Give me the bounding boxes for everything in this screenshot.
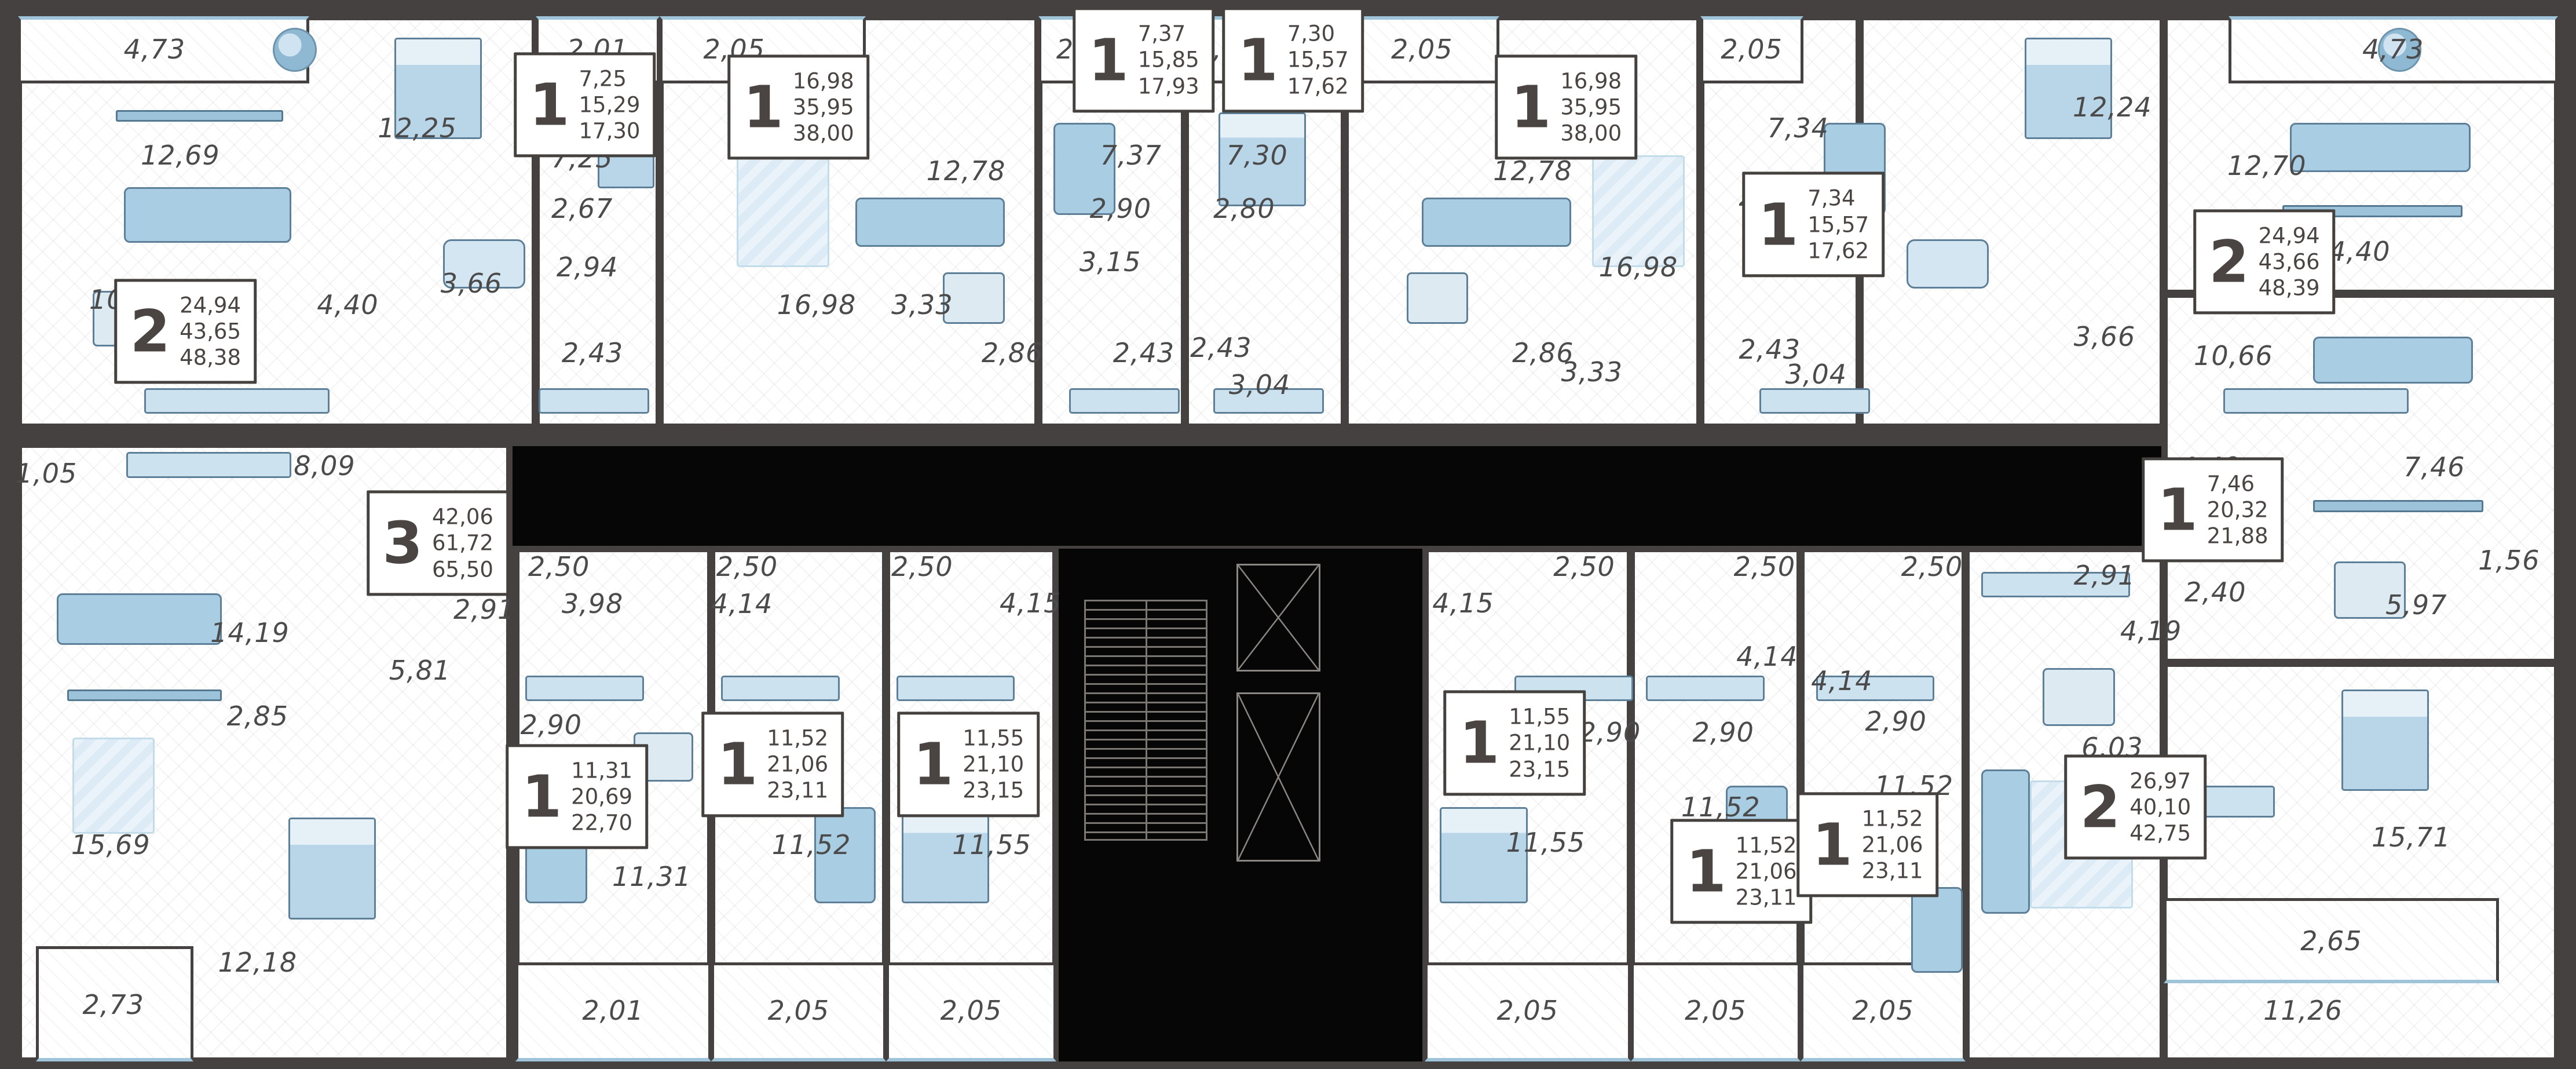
area-value: 21,06: [1862, 831, 1923, 858]
area-value: 11,52: [1862, 805, 1923, 831]
floor-plan: 4,7312,2512,6910,654,403,66224,9443,6548…: [0, 0, 2576, 1069]
room-area-label: 2,50: [1901, 551, 1963, 582]
area-value: 11,31: [571, 757, 632, 783]
room-area-label: 2,67: [551, 193, 613, 224]
room-area-label: 7,46: [2403, 451, 2465, 483]
room-area-label: 2,90: [1865, 706, 1927, 737]
area-value: 35,95: [1560, 94, 1622, 120]
sofa-icon: [2313, 337, 2473, 384]
sofa-icon: [1981, 769, 2030, 914]
area-value: 35,95: [793, 94, 854, 120]
apartment-info-box-B5: 111,5521,1023,15: [1444, 691, 1586, 796]
bed-icon: [2025, 38, 2112, 139]
room-area-label: 2,43: [1113, 337, 1174, 369]
room-area-label: 4,40: [317, 289, 378, 320]
room-area-label: 2,91: [453, 594, 515, 625]
area-values: 11,5521,1023,15: [1509, 704, 1570, 782]
room-area-label: 2,50: [891, 551, 953, 582]
apartment-info-box-B7: 111,5221,0623,11: [1796, 792, 1939, 897]
area-value: 16,98: [1560, 68, 1622, 94]
room-area-label: 3,04: [1229, 369, 1290, 400]
room-count: 1: [1812, 820, 1853, 869]
area-values: 7,3415,5717,62: [1807, 185, 1869, 264]
apartment-info-box-R1: 17,4620,3221,88: [2142, 457, 2284, 562]
area-value: 23,11: [767, 778, 828, 804]
sofa-icon: [2290, 123, 2470, 172]
room-area-label: 2,85: [227, 700, 288, 732]
room-count: 2: [2080, 782, 2121, 831]
room-area-label: 2,40: [2185, 577, 2246, 608]
area-value: 7,30: [1287, 21, 1335, 47]
apartment-info-box-T4: 17,3715,8517,93: [1073, 8, 1215, 112]
area-values: 26,9740,1042,75: [2129, 768, 2191, 846]
area-value: 16,98: [793, 68, 854, 94]
bed-icon: [288, 818, 376, 919]
bath-icon: [1907, 239, 1989, 289]
area-value: 42,75: [2129, 820, 2191, 847]
sofa-icon: [1911, 887, 1963, 973]
room-area-label: 3,98: [562, 588, 623, 619]
area-value: 43,66: [2259, 249, 2320, 275]
apartment-info-box-T7: 17,3415,5717,62: [1743, 172, 1885, 277]
area-value: 22,70: [571, 809, 632, 836]
area-value: 38,00: [793, 120, 854, 146]
area-values: 11,5521,1023,15: [963, 725, 1024, 803]
room-area-label: 4,14: [1736, 641, 1798, 672]
tv-icon: [116, 110, 283, 122]
plant-icon: [273, 28, 317, 72]
room-area-label: 3,66: [2074, 321, 2135, 352]
kitchen-icon: [525, 676, 644, 701]
room-area-label: 2,80: [1213, 193, 1275, 224]
apartment-info-box-B8: 226,9740,1042,75: [2065, 754, 2207, 859]
apartment-info-box-T3: 116,9835,9538,00: [727, 54, 870, 159]
elevator-1-icon: [1236, 564, 1320, 672]
area-value: 20,32: [2207, 497, 2268, 523]
area-values: 11,3120,6922,70: [571, 757, 632, 836]
room-count: 1: [1758, 200, 1799, 249]
room-area-label: 2,86: [982, 337, 1043, 369]
room-area-label: 11,55: [952, 829, 1031, 860]
area-value: 42,06: [432, 504, 493, 530]
room-area-label: 1,05: [16, 458, 77, 489]
room-area-label: 15,71: [2372, 822, 2451, 853]
room-area-label: 2,43: [562, 337, 623, 369]
room-area-label: 12,18: [218, 947, 297, 978]
room-area-label: 2,05: [1391, 34, 1452, 65]
kitchen-icon: [144, 388, 330, 414]
tv-icon: [2313, 500, 2483, 512]
apartment-T8-area: [1860, 16, 2164, 428]
area-value: 23,15: [963, 778, 1024, 804]
apartment-info-box-T2: 17,2515,2917,30: [514, 52, 656, 157]
area-value: 21,06: [1736, 858, 1797, 884]
table-icon: [2043, 668, 2115, 726]
sofa-icon: [124, 187, 291, 243]
area-value: 65,50: [432, 556, 493, 582]
room-area-label: 2,05: [1721, 34, 1782, 65]
apartment-info-box-T8: 224,9443,6648,39: [2193, 209, 2336, 314]
room-area-label: 4,15: [1000, 588, 1061, 619]
room-area-label: 4,15: [1432, 588, 1494, 619]
corridor: [510, 444, 2164, 549]
room-area-label: 8,09: [294, 450, 355, 481]
area-value: 11,55: [963, 725, 1024, 751]
room-area-label: 10,66: [2194, 340, 2273, 371]
room-area-label: 1,56: [2478, 545, 2540, 576]
room-area-label: 4,14: [1811, 665, 1872, 696]
room-area-label: 2,73: [82, 989, 144, 1020]
area-values: 7,2515,2917,30: [579, 65, 641, 144]
area-values: 24,9443,6648,39: [2259, 222, 2320, 301]
room-count: 1: [1511, 82, 1552, 132]
tv-icon: [67, 689, 222, 701]
apartment-info-box-B3: 111,5221,0623,11: [702, 712, 844, 816]
room-area-label: 12,25: [378, 112, 457, 144]
area-value: 23,11: [1862, 858, 1923, 884]
room-area-label: 12,78: [927, 155, 1006, 187]
area-values: 16,9835,9538,00: [1560, 68, 1622, 146]
room-area-label: 4,73: [124, 34, 185, 65]
apartment-info-box-B2: 111,3120,6922,70: [506, 744, 649, 849]
room-area-label: 5,97: [2385, 589, 2447, 621]
area-value: 38,00: [1560, 120, 1622, 146]
room-area-label: 2,50: [1553, 551, 1615, 582]
area-value: 17,62: [1807, 238, 1869, 264]
area-value: 11,52: [1736, 832, 1797, 858]
sofa-icon: [57, 593, 222, 645]
area-value: 61,72: [432, 530, 493, 556]
area-value: 23,15: [1509, 756, 1570, 782]
area-value: 24,94: [2259, 222, 2320, 249]
area-value: 21,10: [963, 751, 1024, 778]
room-area-label: 12,24: [2073, 92, 2152, 123]
room-area-label: 2,50: [716, 551, 778, 582]
area-value: 24,94: [180, 292, 241, 318]
room-area-label: 3,33: [1561, 356, 1623, 388]
area-value: 43,65: [180, 318, 241, 344]
area-value: 26,97: [2129, 768, 2191, 794]
rug-icon: [737, 155, 829, 268]
room-area-label: 3,15: [1080, 246, 1141, 278]
sofa-icon: [855, 198, 1005, 247]
kitchen-icon: [539, 388, 649, 414]
area-value: 17,93: [1138, 73, 1199, 99]
area-value: 20,69: [571, 783, 632, 809]
room-area-label: 11,26: [2263, 995, 2343, 1026]
room-area-label: 7,30: [1226, 140, 1287, 171]
room-count: 1: [1088, 35, 1129, 85]
room-area-label: 7,37: [1100, 140, 1161, 171]
room-area-label: 5,81: [389, 655, 451, 686]
room-area-label: 2,05: [1852, 995, 1913, 1026]
room-count: 1: [913, 740, 954, 789]
room-area-label: 2,65: [2300, 925, 2362, 957]
area-value: 21,10: [1509, 730, 1570, 756]
kitchen-icon: [1759, 388, 1870, 414]
area-value: 21,88: [2207, 523, 2268, 549]
apartment-info-box-B4: 111,5521,1023,15: [898, 712, 1040, 816]
area-value: 11,52: [767, 725, 828, 751]
room-count: 1: [522, 772, 562, 821]
room-count: 1: [1686, 847, 1726, 896]
area-values: 7,3715,8517,93: [1138, 21, 1199, 99]
room-area-label: 11,55: [1506, 827, 1585, 858]
apartment-info-box-T5: 17,3015,5717,62: [1222, 8, 1364, 112]
area-value: 7,25: [579, 65, 627, 92]
room-area-label: 2,90: [1579, 717, 1641, 748]
area-value: 7,46: [2207, 470, 2255, 497]
area-values: 42,0661,7265,50: [432, 504, 493, 582]
area-values: 24,9443,6548,38: [180, 292, 241, 370]
room-area-label: 4,73: [2362, 34, 2424, 65]
room-area-label: 2,50: [528, 551, 590, 582]
room-count: 1: [2157, 486, 2198, 535]
room-count: 1: [529, 80, 570, 129]
area-value: 7,34: [1807, 185, 1855, 211]
area-value: 15,57: [1287, 47, 1349, 73]
room-area-label: 11,52: [1681, 791, 1761, 823]
stair-elevator-core: [1056, 546, 1425, 1064]
room-area-label: 12,69: [141, 140, 220, 171]
area-values: 11,5221,0623,11: [1736, 832, 1797, 910]
apartment-info-box-T1: 224,9443,6548,38: [114, 279, 257, 384]
room-area-label: 2,05: [1496, 995, 1558, 1026]
room-area-label: 2,91: [2074, 560, 2135, 591]
kitchen-icon: [1646, 676, 1765, 701]
elevator-2-icon: [1236, 692, 1320, 862]
room-area-label: 16,98: [777, 289, 857, 320]
apartment-info-box-T6: 116,9835,9538,00: [1495, 54, 1638, 159]
room-count: 1: [743, 82, 784, 132]
room-area-label: 3,33: [891, 289, 953, 320]
room-count: 1: [718, 740, 758, 789]
area-values: 7,3015,5717,62: [1287, 21, 1349, 99]
kitchen-icon: [897, 676, 1015, 701]
room-area-label: 2,94: [557, 251, 618, 283]
bed-icon: [2341, 689, 2429, 791]
kitchen-icon: [126, 452, 291, 477]
room-area-label: 2,90: [1090, 193, 1151, 224]
area-value: 21,06: [767, 751, 828, 778]
rug-icon: [1592, 155, 1685, 268]
area-value: 17,62: [1287, 73, 1349, 99]
apartment-info-box-B1: 342,0661,7265,50: [367, 491, 509, 596]
room-area-label: 14,19: [210, 617, 290, 648]
area-value: 48,39: [2259, 275, 2320, 301]
area-value: 15,29: [579, 92, 641, 118]
room-area-label: 16,98: [1599, 251, 1678, 283]
area-values: 16,9835,9538,00: [793, 68, 854, 146]
kitchen-icon: [1069, 388, 1180, 414]
kitchen-icon: [721, 676, 840, 701]
room-area-label: 4,40: [2329, 236, 2390, 267]
kitchen-icon: [2223, 388, 2409, 414]
room-area-label: 3,04: [1785, 359, 1847, 390]
area-values: 11,5221,0623,11: [767, 725, 828, 803]
room-area-label: 2,05: [941, 995, 1002, 1026]
room-area-label: 4,19: [2120, 615, 2182, 647]
room-area-label: 12,78: [1493, 155, 1572, 187]
room-area-label: 15,69: [71, 829, 151, 860]
area-value: 23,11: [1736, 884, 1797, 910]
room-count: 3: [382, 519, 423, 568]
room-area-label: 11,52: [772, 829, 851, 860]
room-count: 1: [1459, 718, 1500, 768]
room-area-label: 4,14: [711, 588, 773, 619]
room-area-label: 11,31: [612, 861, 691, 892]
room-area-label: 2,90: [521, 709, 582, 740]
area-value: 17,30: [579, 118, 641, 144]
room-area-label: 2,50: [1734, 551, 1795, 582]
room-count: 2: [2209, 238, 2249, 287]
area-value: 40,10: [2129, 794, 2191, 820]
room-area-label: 3,66: [441, 268, 502, 299]
rug-icon: [72, 738, 155, 834]
area-value: 7,37: [1138, 21, 1185, 47]
area-value: 11,55: [1509, 704, 1570, 730]
room-area-label: 2,90: [1692, 717, 1754, 748]
staircase-icon: [1084, 600, 1208, 841]
room-area-label: 2,43: [1190, 332, 1252, 363]
table-icon: [1407, 272, 1469, 324]
sofa-icon: [1422, 198, 1571, 247]
room-area-label: 12,70: [2227, 150, 2307, 181]
room-area-label: 7,34: [1767, 112, 1828, 144]
area-values: 11,5221,0623,11: [1862, 805, 1923, 884]
room-area-label: 2,01: [582, 995, 643, 1026]
apartment-info-box-B6: 111,5221,0623,11: [1670, 819, 1813, 924]
room-count: 1: [1238, 35, 1278, 85]
room-area-label: 2,05: [768, 995, 829, 1026]
area-value: 15,85: [1138, 47, 1199, 73]
room-area-label: 2,05: [1685, 995, 1746, 1026]
area-values: 7,4620,3221,88: [2207, 470, 2268, 549]
area-value: 48,38: [180, 345, 241, 371]
room-count: 2: [130, 307, 170, 356]
area-value: 15,57: [1807, 211, 1869, 238]
